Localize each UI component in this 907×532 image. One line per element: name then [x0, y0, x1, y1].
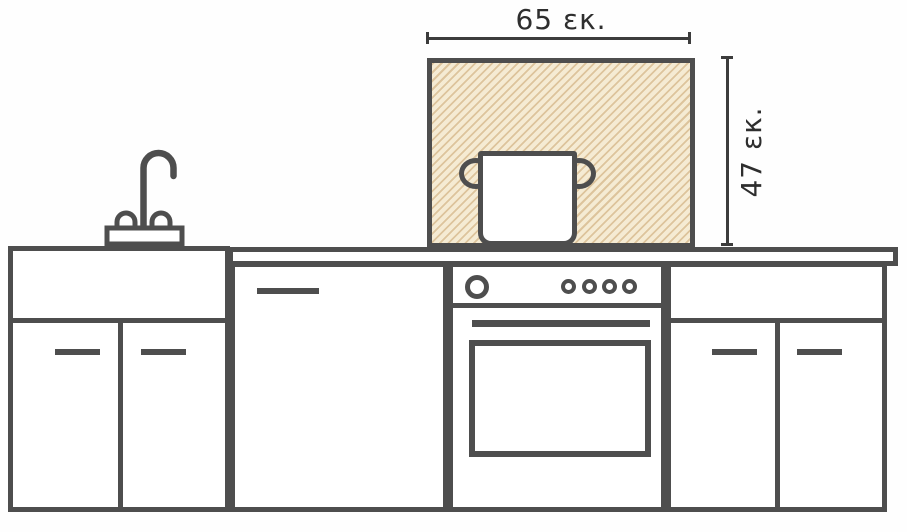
door-handle-right — [797, 349, 842, 355]
width-dimension-label: 65 εκ. — [427, 3, 695, 36]
oven-knob-3 — [602, 279, 617, 294]
height-dimension-tick-bottom — [721, 243, 733, 246]
door-handle-left — [712, 349, 757, 355]
dishwasher — [230, 262, 448, 512]
countertop — [228, 247, 898, 266]
height-dimension-label: 47 εκ. — [736, 92, 768, 212]
sink-cabinet-door-divider — [118, 321, 123, 507]
sink-cabinet — [8, 246, 230, 512]
oven-knob-1 — [561, 279, 576, 294]
faucet-base — [107, 228, 182, 244]
oven-door-window — [469, 340, 651, 457]
oven-control-divider — [453, 303, 661, 308]
width-dimension-line — [427, 37, 691, 40]
height-dimension-tick-top — [721, 56, 733, 59]
oven-door-handle — [472, 320, 650, 327]
right-cabinet-door-divider — [775, 321, 780, 507]
width-dimension-tick-left — [426, 32, 429, 44]
oven — [448, 262, 666, 512]
dishwasher-handle — [257, 288, 319, 294]
oven-knob-4 — [622, 279, 637, 294]
door-handle-right — [141, 349, 186, 355]
oven-dial — [465, 275, 489, 299]
faucet — [95, 140, 205, 252]
width-dimension-tick-right — [688, 32, 691, 44]
pot-body — [478, 151, 577, 246]
right-cabinet — [666, 262, 887, 512]
oven-knob-2 — [582, 279, 597, 294]
kitchen-diagram: 65 εκ. 47 εκ. — [0, 0, 907, 532]
height-dimension-line — [726, 57, 729, 246]
door-handle-left — [55, 349, 100, 355]
